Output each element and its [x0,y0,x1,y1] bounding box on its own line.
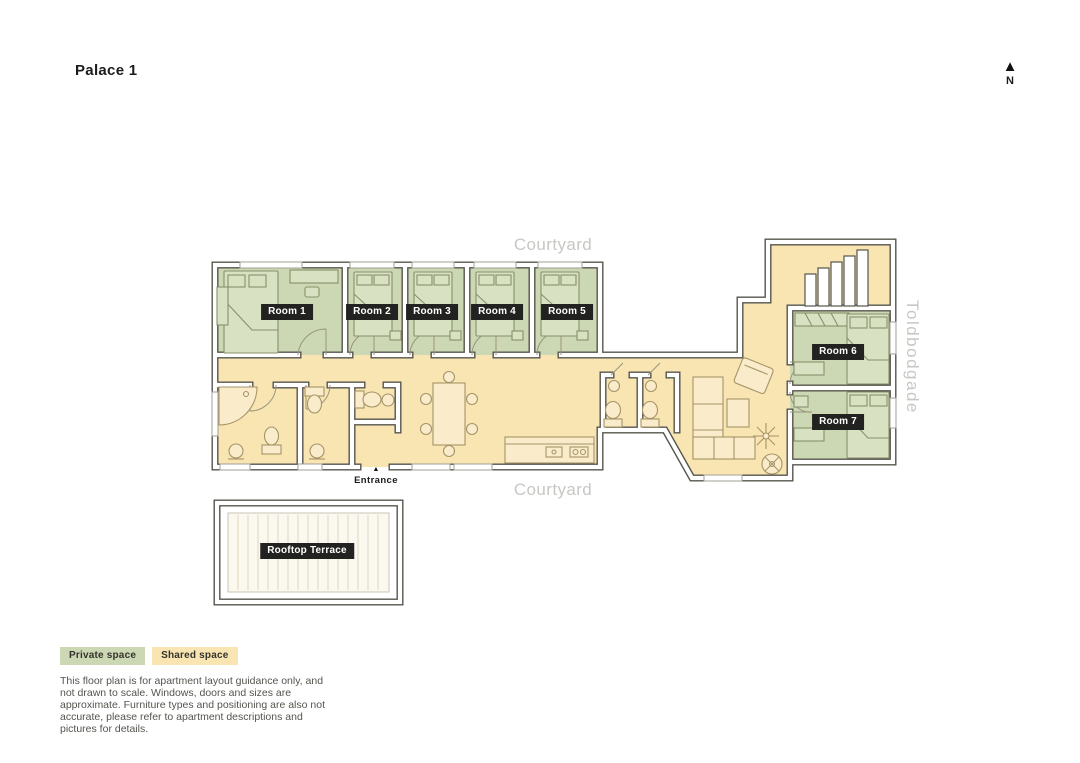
room-label-6: Room 6 [812,344,864,360]
entrance-arrow-icon: ▲ [373,466,380,474]
terrace-label: Rooftop Terrace [260,543,354,559]
courtyard-label-top: Courtyard [514,235,592,255]
legend: Private space Shared space [60,647,238,665]
courtyard-label-bottom: Courtyard [514,480,592,500]
entrance-label: Entrance [354,475,398,486]
disclaimer-text: This floor plan is for apartment layout … [60,676,338,736]
entrance-marker: ▲ Entrance [354,466,398,486]
legend-private-space: Private space [60,647,145,665]
room-label-3: Room 3 [406,304,458,320]
street-label: Toldbodgade [902,300,922,414]
room-label-5: Room 5 [541,304,593,320]
legend-shared-space: Shared space [152,647,237,665]
room-label-1: Room 1 [261,304,313,320]
room-label-4: Room 4 [471,304,523,320]
room-label-2: Room 2 [346,304,398,320]
room-label-7: Room 7 [812,414,864,430]
floor-plan-page: Palace 1 ▲ N [0,0,1080,763]
